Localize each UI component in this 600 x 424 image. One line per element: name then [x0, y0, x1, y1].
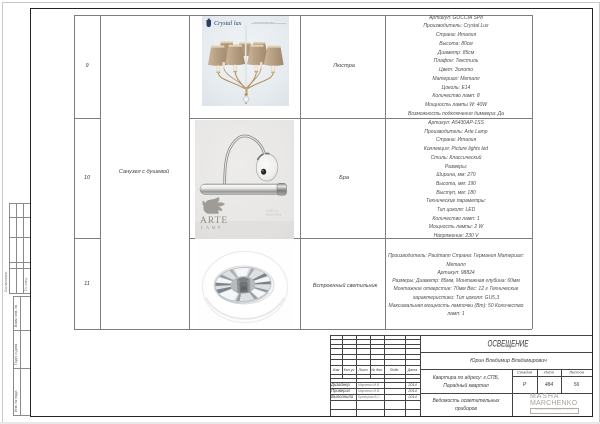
- svg-text:LAMP: LAMP: [201, 225, 223, 230]
- svg-text:Crystal lux: Crystal lux: [214, 20, 242, 27]
- svg-text:ЛЮСТРЫ: ЛЮСТРЫ: [266, 213, 281, 217]
- svg-text:салон элитного света: салон элитного света: [254, 22, 275, 24]
